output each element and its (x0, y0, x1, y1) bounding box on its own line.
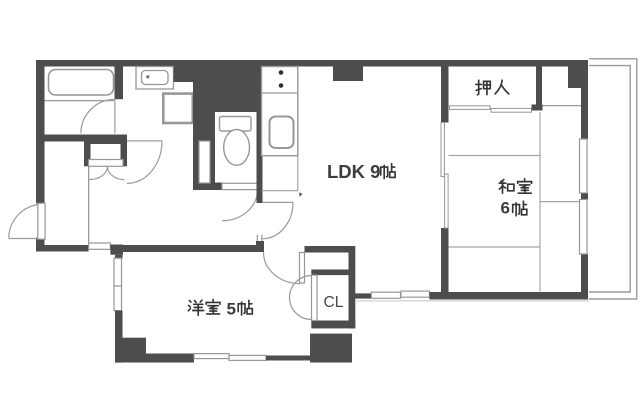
svg-text:LDK 9: LDK 9 (327, 161, 380, 182)
svg-text:5: 5 (227, 299, 236, 318)
svg-text:CL: CL (324, 294, 344, 311)
svg-text:6: 6 (501, 199, 510, 218)
